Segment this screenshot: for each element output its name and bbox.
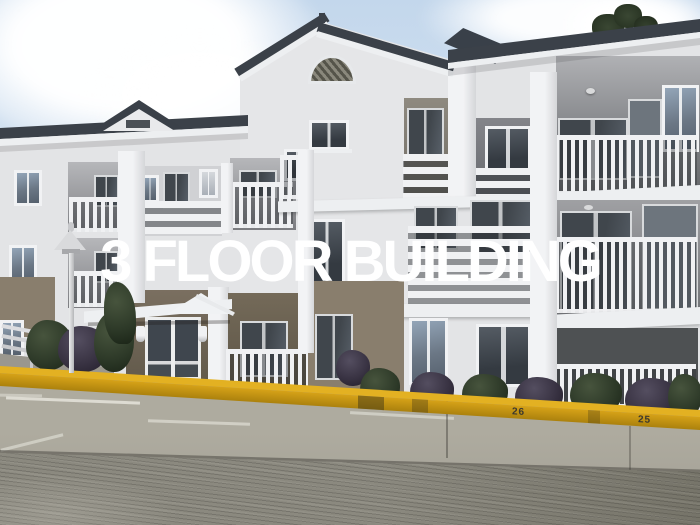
gable-window xyxy=(309,120,349,150)
dormer-vent xyxy=(126,120,150,128)
wall-lantern xyxy=(198,326,207,342)
lamp-post-head xyxy=(54,230,86,250)
pilaster xyxy=(221,163,233,233)
curb-stain xyxy=(358,396,384,411)
ceiling-lamp xyxy=(586,88,595,94)
roof-finial xyxy=(319,13,325,23)
curb-number-26: 26 xyxy=(512,406,525,418)
photo-apartment-building: 26 25 3 FLOOR BUILDING xyxy=(0,0,700,525)
curb-stain xyxy=(412,399,428,413)
sliding-door xyxy=(407,108,444,160)
wall-lantern xyxy=(136,326,145,342)
window xyxy=(14,170,42,206)
window xyxy=(485,126,531,174)
pavement-highlight xyxy=(0,472,180,525)
balcony-railing-slats xyxy=(403,154,448,200)
curb-stain xyxy=(588,410,600,424)
floor-slab xyxy=(400,304,538,317)
entrance-door xyxy=(145,317,201,380)
curb-number-25: 25 xyxy=(638,414,651,426)
lamp-post-pole xyxy=(69,253,74,373)
ceiling-lamp xyxy=(584,205,593,210)
window xyxy=(199,169,218,198)
pilaster xyxy=(448,58,476,204)
overlay-caption: 3 FLOOR BUILDING xyxy=(100,228,600,295)
balcony-railing xyxy=(69,197,120,232)
